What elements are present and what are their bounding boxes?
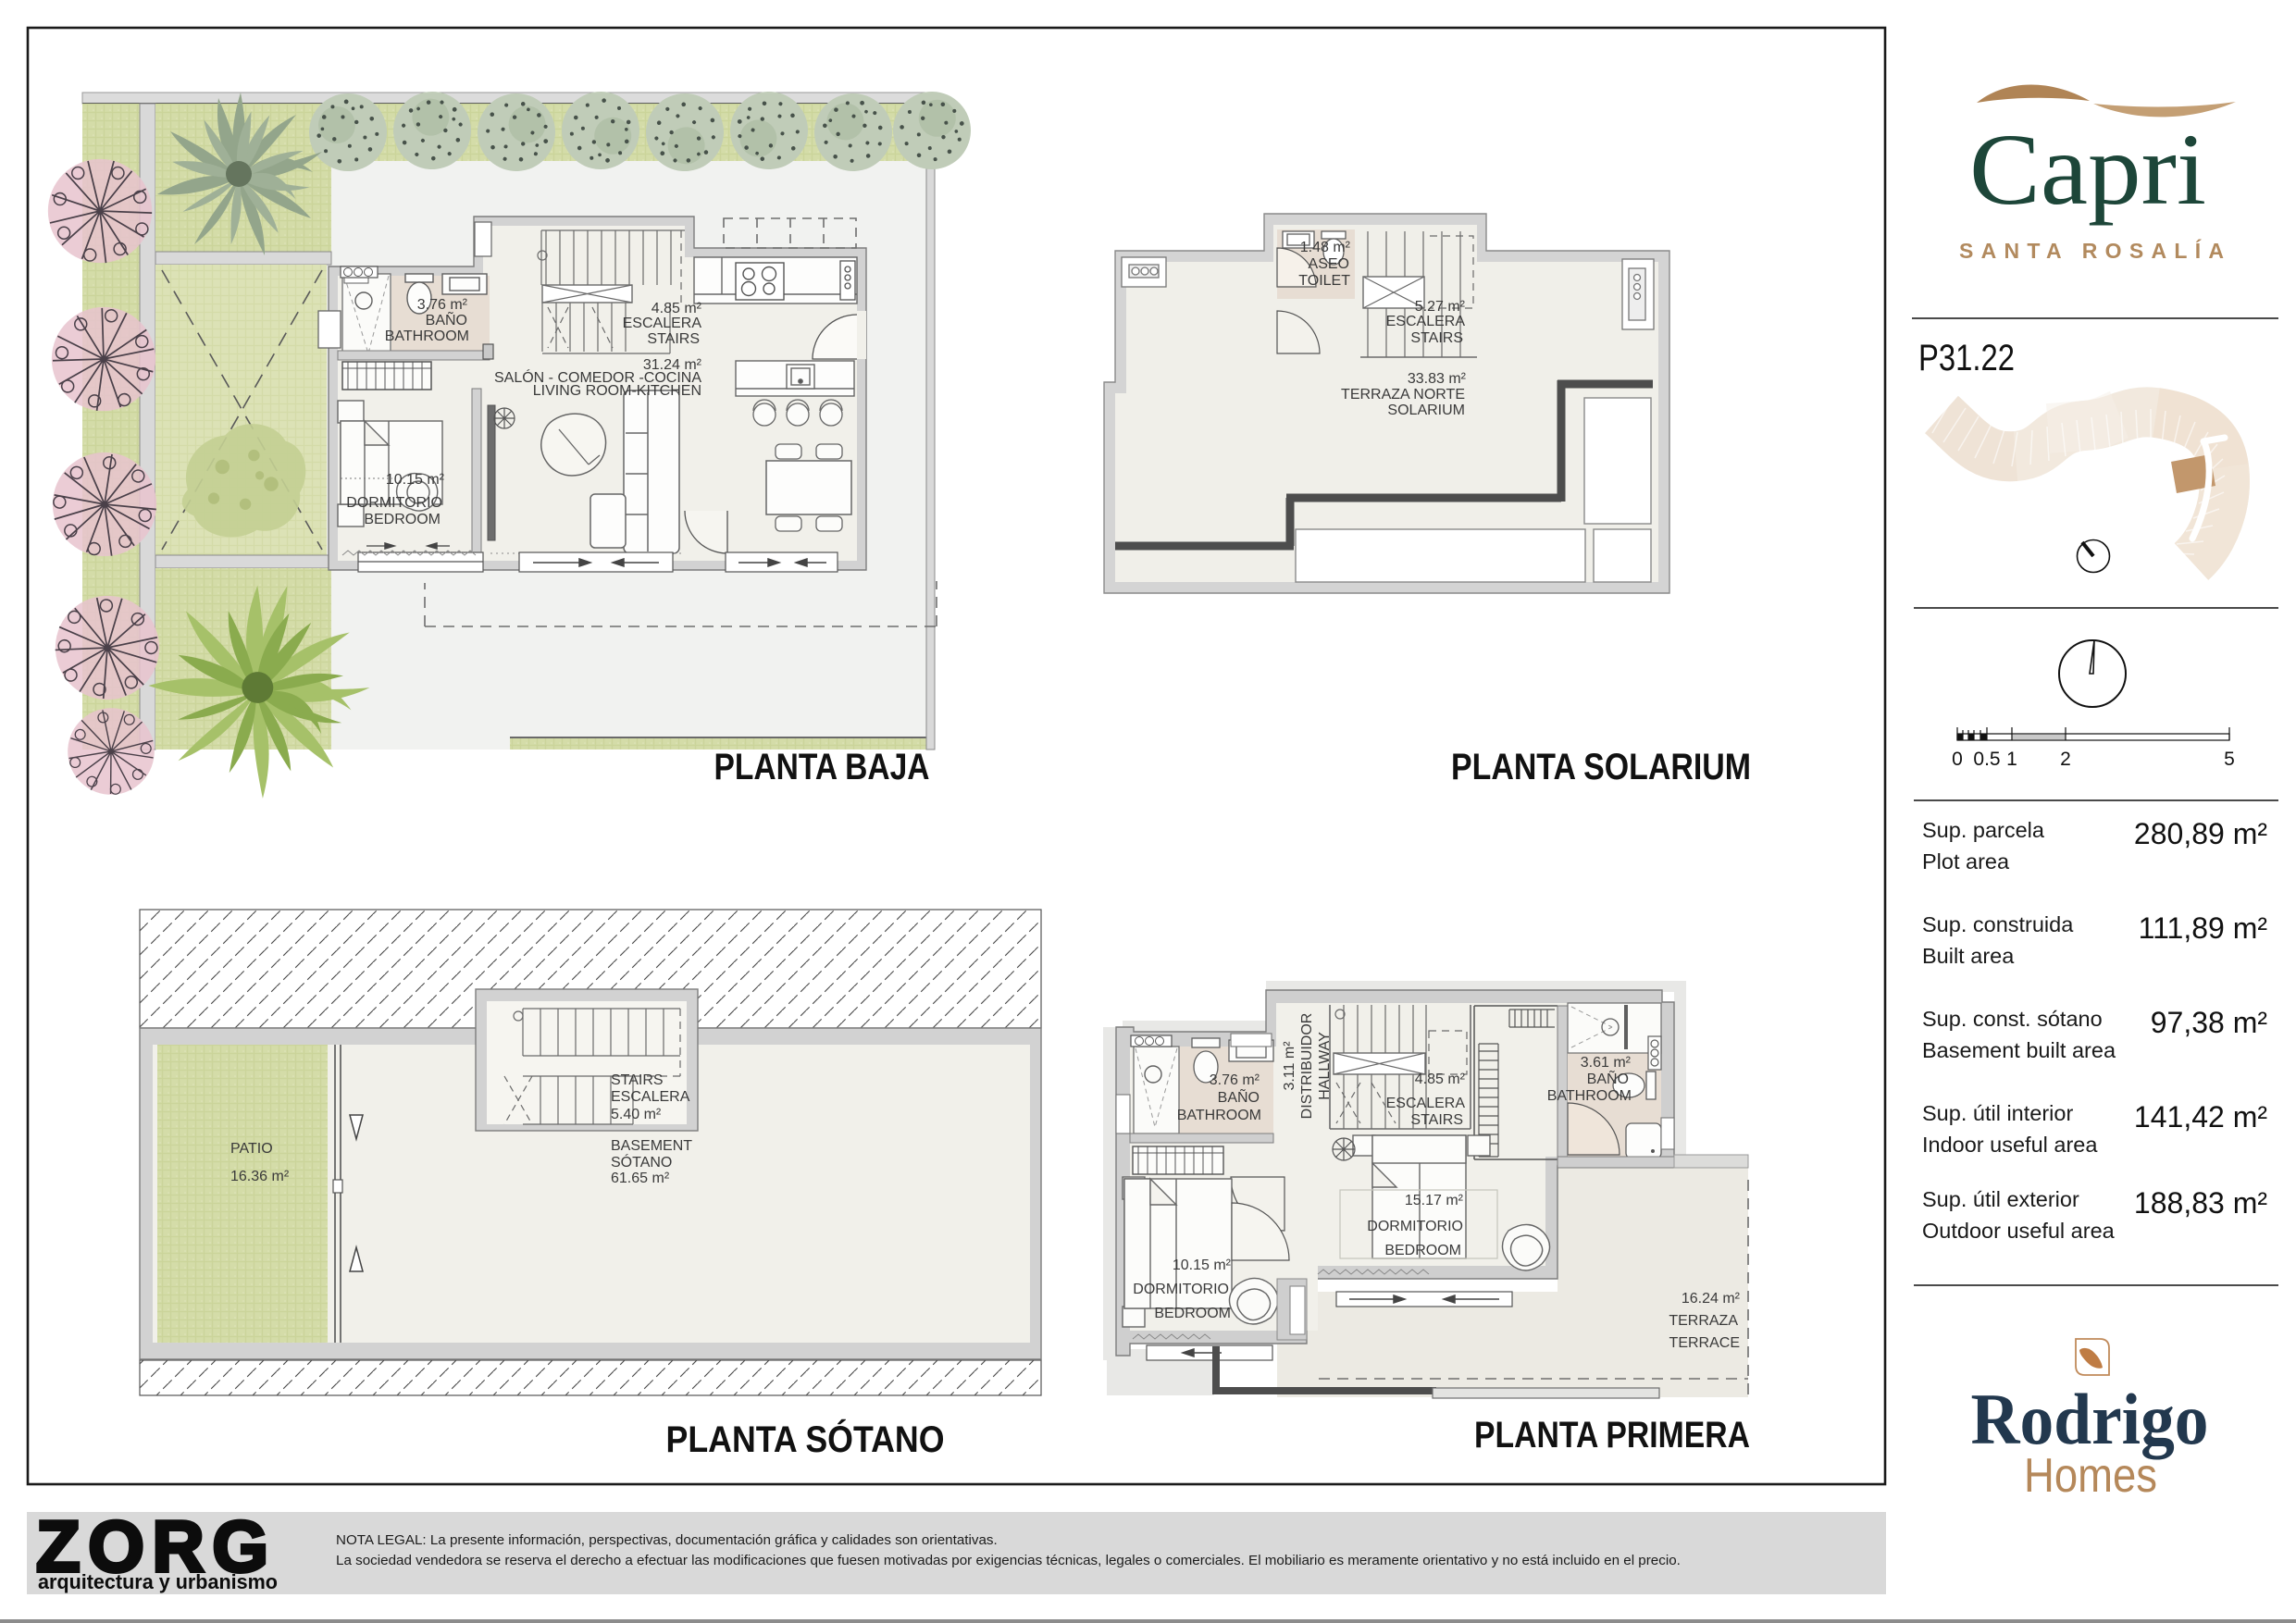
- svg-text:5.40 m²: 5.40 m²: [611, 1107, 662, 1122]
- svg-text:Sup. útil interior: Sup. útil interior: [1922, 1101, 2073, 1125]
- svg-text:ESCALERA: ESCALERA: [1386, 1096, 1466, 1111]
- svg-text:97,38 m²: 97,38 m²: [2151, 1006, 2268, 1039]
- svg-text:TERRAZA: TERRAZA: [1669, 1313, 1738, 1329]
- svg-text:P31.22: P31.22: [1918, 338, 2015, 378]
- svg-text:16.36 m²: 16.36 m²: [230, 1169, 290, 1184]
- svg-text:ESCALERA: ESCALERA: [611, 1089, 690, 1105]
- svg-text:PLANTA BAJA: PLANTA BAJA: [714, 747, 930, 787]
- svg-text:Capri: Capri: [1969, 113, 2206, 226]
- svg-text:10.15 m²: 10.15 m²: [386, 472, 445, 488]
- svg-text:1: 1: [2006, 749, 2017, 770]
- svg-text:BEDROOM: BEDROOM: [1154, 1306, 1231, 1321]
- svg-text:PATIO: PATIO: [230, 1141, 273, 1157]
- svg-text:STAIRS: STAIRS: [1410, 330, 1463, 346]
- svg-text:BASEMENT: BASEMENT: [611, 1138, 692, 1154]
- svg-text:BAÑO: BAÑO: [426, 310, 467, 328]
- svg-text:Rodrigo: Rodrigo: [1971, 1379, 2209, 1459]
- svg-text:3.61 m²: 3.61 m²: [1581, 1055, 1632, 1071]
- svg-text:BATHROOM: BATHROOM: [1547, 1088, 1632, 1104]
- svg-text:BEDROOM: BEDROOM: [1384, 1243, 1461, 1258]
- svg-text:3.11 m²: 3.11 m²: [1282, 1041, 1297, 1091]
- svg-text:10.15 m²: 10.15 m²: [1173, 1258, 1232, 1273]
- svg-text:TERRAZA NORTE: TERRAZA NORTE: [1341, 387, 1465, 403]
- svg-text:BAÑO: BAÑO: [1218, 1087, 1260, 1106]
- svg-text:Sup. parcela: Sup. parcela: [1922, 818, 2045, 842]
- svg-text:NOTA LEGAL: La presente inform: NOTA LEGAL: La presente información, per…: [336, 1532, 998, 1548]
- svg-text:Plot area: Plot area: [1922, 849, 2010, 873]
- svg-text:BATHROOM: BATHROOM: [385, 328, 469, 344]
- svg-text:BATHROOM: BATHROOM: [1177, 1108, 1261, 1123]
- svg-text:DISTRIBUIDOR: DISTRIBUIDOR: [1299, 1013, 1315, 1120]
- svg-text:Basement built area: Basement built area: [1922, 1038, 2116, 1062]
- svg-text:61.65 m²: 61.65 m²: [611, 1171, 670, 1186]
- svg-text:280,89 m²: 280,89 m²: [2134, 817, 2267, 850]
- svg-text:5.27 m²: 5.27 m²: [1415, 299, 1466, 315]
- svg-text:Outdoor useful area: Outdoor useful area: [1922, 1219, 2116, 1243]
- svg-text:4.85 m²: 4.85 m²: [652, 301, 702, 316]
- svg-text:Indoor useful area: Indoor useful area: [1922, 1133, 2098, 1157]
- svg-text:ASEO: ASEO: [1309, 256, 1349, 272]
- svg-text:111,89 m²: 111,89 m²: [2139, 911, 2268, 945]
- svg-text:STAIRS: STAIRS: [647, 331, 700, 347]
- svg-text:ESCALERA: ESCALERA: [623, 316, 702, 331]
- svg-text:PLANTA SOLARIUM: PLANTA SOLARIUM: [1451, 747, 1751, 787]
- svg-text:5: 5: [2224, 749, 2235, 770]
- svg-text:SÓTANO: SÓTANO: [611, 1153, 672, 1171]
- svg-text:3.76 m²: 3.76 m²: [1210, 1072, 1260, 1088]
- svg-text:DORMITORIO: DORMITORIO: [1133, 1282, 1229, 1297]
- svg-text:BEDROOM: BEDROOM: [364, 512, 441, 527]
- svg-text:4.85 m²: 4.85 m²: [1415, 1072, 1466, 1087]
- svg-text:188,83 m²: 188,83 m²: [2134, 1186, 2267, 1220]
- svg-text:STAIRS: STAIRS: [1410, 1112, 1463, 1128]
- svg-text:SANTA ROSALÍA: SANTA ROSALÍA: [1959, 238, 2224, 263]
- svg-text:15.17 m²: 15.17 m²: [1405, 1193, 1464, 1208]
- svg-text:DORMITORIO: DORMITORIO: [1367, 1219, 1463, 1234]
- svg-text:2: 2: [2060, 749, 2071, 770]
- svg-text:SOLARIUM: SOLARIUM: [1387, 403, 1465, 418]
- svg-text:1.48 m²: 1.48 m²: [1300, 240, 1351, 255]
- svg-text:Sup. útil exterior: Sup. útil exterior: [1922, 1187, 2079, 1211]
- svg-text:141,42 m²: 141,42 m²: [2134, 1100, 2267, 1134]
- svg-text:Sup. const. sótano: Sup. const. sótano: [1922, 1007, 2103, 1031]
- svg-text:3.76 m²: 3.76 m²: [417, 297, 468, 313]
- svg-text:Homes: Homes: [2024, 1449, 2157, 1503]
- svg-text:0.5: 0.5: [1973, 749, 2000, 770]
- svg-text:16.24 m²: 16.24 m²: [1682, 1291, 1741, 1307]
- svg-text:BAÑO: BAÑO: [1587, 1069, 1629, 1087]
- svg-text:STAIRS: STAIRS: [611, 1072, 664, 1088]
- svg-text:DORMITORIO: DORMITORIO: [346, 495, 442, 511]
- svg-text:arquitectura y urbanismo: arquitectura y urbanismo: [38, 1570, 278, 1593]
- svg-text:0: 0: [1952, 749, 1963, 770]
- svg-text:33.83 m²: 33.83 m²: [1408, 371, 1467, 387]
- svg-text:Sup. construida: Sup. construida: [1922, 912, 2074, 936]
- svg-text:Built area: Built area: [1922, 944, 2015, 968]
- svg-text:La sociedad vendedora se reser: La sociedad vendedora se reserva el dere…: [336, 1553, 1681, 1568]
- svg-text:ESCALERA: ESCALERA: [1386, 314, 1466, 329]
- svg-text:PLANTA SÓTANO: PLANTA SÓTANO: [666, 1418, 945, 1460]
- svg-text:TERRACE: TERRACE: [1669, 1335, 1740, 1351]
- svg-text:LIVING ROOM-KITCHEN: LIVING ROOM-KITCHEN: [533, 383, 701, 399]
- svg-text:PLANTA PRIMERA: PLANTA PRIMERA: [1474, 1415, 1750, 1456]
- svg-text:TOILET: TOILET: [1298, 273, 1350, 289]
